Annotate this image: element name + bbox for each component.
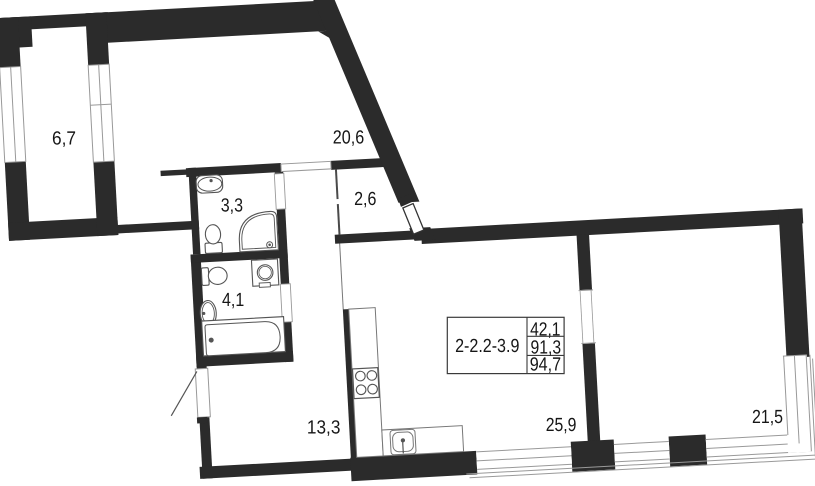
svg-text:20,6: 20,6 [333,128,364,149]
svg-text:2,6: 2,6 [354,189,376,210]
svg-text:21,5: 21,5 [752,407,783,428]
svg-text:94,7: 94,7 [530,355,561,376]
svg-text:6,7: 6,7 [52,129,76,150]
svg-text:25,9: 25,9 [546,415,577,436]
svg-text:4,1: 4,1 [222,290,244,311]
svg-text:13,3: 13,3 [307,418,341,439]
svg-text:2-2.2-3.9: 2-2.2-3.9 [455,336,519,357]
svg-text:3,3: 3,3 [221,196,243,217]
